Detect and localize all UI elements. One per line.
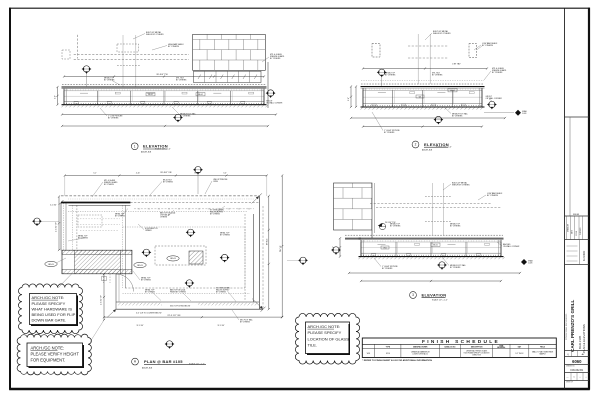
svg-text:A06-BR -BLB: A06-BR -BLB: [142, 367, 153, 370]
svg-text:FOR EQUIPMENT.: FOR EQUIPMENT.: [31, 358, 66, 363]
svg-text:A06-BR -BLB: A06-BR -BLB: [141, 151, 152, 154]
svg-text:BY OTHERS: BY OTHERS: [240, 322, 251, 324]
svg-text:ON WALL CORNER: ON WALL CORNER: [266, 102, 283, 105]
svg-text:ISSUES: ISSUES: [573, 214, 580, 216]
svg-text:1: 1: [134, 144, 136, 148]
svg-text:PLEASE VERIFY HEIGHT: PLEASE VERIFY HEIGHT: [31, 352, 80, 357]
svg-text:5'-1 3/4": 5'-1 3/4": [50, 205, 57, 207]
svg-text:CLUB: CLUB: [528, 262, 532, 264]
svg-text:3: 3: [412, 293, 414, 297]
svg-text:11'-1 3/4": 11'-1 3/4": [137, 325, 144, 327]
svg-text:BY OTHERS: BY OTHERS: [452, 116, 463, 118]
svg-text:6.25.08: 6.25.08: [576, 231, 578, 236]
svg-text:FINISH SCHEDULE: FINISH SCHEDULE: [422, 339, 500, 345]
svg-text:CHECKED: CHECKED: [580, 227, 582, 235]
svg-text:Q: Q: [567, 354, 569, 356]
svg-text:ARCH./GC NOTE:: ARCH./GC NOTE:: [32, 295, 65, 300]
svg-text:KICK TO FOOTING BELOW: KICK TO FOOTING BELOW: [170, 306, 191, 308]
svg-text:SHELF BY OTHERS: SHELF BY OTHERS: [452, 185, 470, 187]
svg-text:BY OTHERS: BY OTHERS: [141, 280, 152, 282]
svg-text:DOWN BAR GATE.: DOWN BAR GATE.: [32, 318, 67, 323]
svg-text:W01: W01: [383, 247, 386, 249]
svg-text:3'-6": 3'-6": [55, 95, 57, 99]
svg-text:BEING USED FOR FLIP: BEING USED FOR FLIP: [32, 312, 76, 317]
svg-text:BE-02: BE-02: [198, 94, 203, 96]
svg-text:SHELF BY OTHERS: SHELF BY OTHERS: [146, 34, 164, 36]
svg-text:BY OTHERS: BY OTHERS: [220, 235, 231, 237]
svg-text:BY OTHERS: BY OTHERS: [482, 45, 494, 47]
svg-text:BR-03: BR-03: [48, 264, 53, 266]
svg-text:BE-01: BE-01: [433, 245, 438, 247]
svg-text:CARL PRENZO'S GRILL: CARL PRENZO'S GRILL: [570, 300, 575, 352]
svg-text:4'-5 3/4" VIF: 4'-5 3/4" VIF: [56, 221, 58, 232]
svg-text:K216: K216: [386, 353, 390, 355]
svg-text:OWNER: OWNER: [145, 230, 152, 232]
svg-text:BR-03: BR-03: [137, 265, 142, 267]
svg-text:BY OTHERS: BY OTHERS: [487, 195, 499, 197]
svg-text:A06-BR -BLB: A06-BR -BLB: [422, 149, 433, 152]
svg-text:ON WALL CORNER: ON WALL CORNER: [503, 245, 520, 248]
svg-text:BE-01: BE-01: [450, 90, 455, 92]
svg-text:FIELD: FIELD: [540, 346, 546, 348]
svg-text:PLAN @ BAR #105: PLAN @ BAR #105: [144, 359, 183, 364]
svg-text:K-NORD: K-NORD: [582, 251, 586, 261]
svg-text:BY OTHERS: BY OTHERS: [450, 226, 461, 228]
svg-text:BY OTHERS: BY OTHERS: [382, 268, 393, 270]
svg-text:* REFER TO FINISH SHEET A1.05: * REFER TO FINISH SHEET A1.05 FOR ADDITI…: [362, 359, 432, 362]
svg-text:BY OTHERS: BY OTHERS: [384, 132, 395, 134]
svg-text:CTR TBV: CTR TBV: [452, 64, 461, 66]
svg-text:W2: W2: [419, 96, 422, 98]
svg-text:3'-6": 3'-6": [333, 246, 335, 250]
svg-text:SCALE: 1/2" = 1'-0": SCALE: 1/2" = 1'-0": [189, 363, 205, 366]
svg-text:CLUB: CLUB: [522, 113, 526, 115]
svg-text:PLEASE SPECIFY: PLEASE SPECIFY: [308, 330, 342, 335]
svg-text:SHELF BY OTHERS: SHELF BY OTHERS: [433, 33, 451, 35]
svg-text:OPEN: OPEN: [213, 181, 219, 183]
svg-text:2: 2: [415, 143, 417, 147]
svg-text:4'-9 3/4" VIF: 4'-9 3/4" VIF: [101, 294, 103, 305]
svg-text:26'-3/4" TW: 26'-3/4" TW: [156, 74, 168, 76]
svg-text:ARCH./GC NOTE:: ARCH./GC NOTE:: [308, 324, 341, 329]
svg-text:BY OTHERS: BY OTHERS: [492, 72, 503, 74]
svg-text:PLAN & ELEVATIONS: PLAN & ELEVATIONS: [582, 324, 586, 353]
svg-text:BY OTHERS: BY OTHERS: [176, 80, 187, 82]
svg-text:BY OTHERS: BY OTHERS: [115, 216, 126, 218]
svg-text:DIRECTION: DIRECTION: [472, 354, 481, 356]
svg-text:TILE.: TILE.: [308, 343, 318, 348]
svg-text:5'-0": 5'-0": [223, 173, 227, 175]
svg-text:BY OTHERS: BY OTHERS: [432, 75, 443, 77]
svg-text:SCALE: 1/2" = 1'-0": SCALE: 1/2" = 1'-0": [155, 148, 171, 151]
svg-text:ELEVATION: ELEVATION: [422, 292, 447, 297]
svg-text:6060: 6060: [572, 359, 582, 364]
svg-text:W01: W01: [367, 353, 371, 355]
svg-text:BY OTHERS: BY OTHERS: [210, 214, 221, 216]
svg-text:SCALE: 1/2" = 1'-0": SCALE: 1/2" = 1'-0": [432, 298, 448, 301]
svg-text:BR-03: BR-03: [170, 258, 175, 260]
svg-text:BR TILE: BR TILE: [267, 238, 269, 245]
svg-text:MANUFACTURER: MANUFACTURER: [413, 345, 428, 348]
svg-text:WHAT HARDWARE IS: WHAT HARDWARE IS: [32, 307, 73, 312]
svg-text:SCALE: 1/2" = 1'-0": SCALE: 1/2" = 1'-0": [436, 146, 452, 149]
svg-text:SHEET OF: SHEET OF: [566, 382, 573, 384]
svg-text:DESCRIPTION: DESCRIPTION: [471, 346, 483, 348]
svg-text:BE-01: BE-01: [148, 94, 153, 96]
svg-text:BY OTHERS: BY OTHERS: [168, 46, 180, 48]
svg-text:26'-3/4" VIF: 26'-3/4" VIF: [160, 172, 172, 174]
svg-text:1/4" THICK: 1/4" THICK: [515, 353, 524, 355]
svg-text:TRIM: TRIM: [499, 345, 504, 347]
svg-text:FINISH BY OTHERS: FINISH BY OTHERS: [170, 292, 187, 294]
svg-text:BY OTHERS: BY OTHERS: [216, 292, 227, 294]
svg-text:K06-062-B1: K06-062-B1: [570, 369, 583, 372]
svg-text:6'-0" CLR TO COUNTER BELOW: 6'-0" CLR TO COUNTER BELOW: [136, 313, 162, 315]
svg-text:LOCATION OF GLASS: LOCATION OF GLASS: [308, 336, 350, 341]
svg-text:3'-6": 3'-6": [348, 97, 350, 101]
svg-text:BY OTHERS: BY OTHERS: [385, 75, 396, 77]
svg-text:OTHERS: OTHERS: [160, 217, 168, 219]
svg-text:4'-11": 4'-11": [136, 173, 141, 175]
svg-text:CATALOG NO.: CATALOG NO.: [444, 345, 456, 348]
svg-text:5'-1": 5'-1": [93, 173, 97, 175]
svg-text:BY OTHERS: BY OTHERS: [108, 118, 119, 120]
svg-text:TBV VIF: TBV VIF: [280, 246, 282, 252]
svg-text:PLEASE SPECIFY: PLEASE SPECIFY: [32, 301, 66, 306]
svg-text:BY OTHERS: BY OTHERS: [163, 182, 174, 184]
svg-text:BY OTHERS: BY OTHERS: [78, 238, 89, 240]
svg-text:ON WALL CORNER: ON WALL CORNER: [486, 97, 503, 100]
svg-text:BY OTHERS: BY OTHERS: [104, 184, 115, 186]
svg-text:BY OTHERS: BY OTHERS: [145, 292, 156, 294]
svg-text:11'-1 3/4": 11'-1 3/4": [218, 325, 225, 327]
svg-text:BY OTHERS: BY OTHERS: [270, 58, 281, 60]
svg-text:22'-3 1/2" VIF: 22'-3 1/2" VIF: [167, 315, 181, 317]
svg-text:BY OTHERS: BY OTHERS: [390, 226, 401, 228]
svg-text:ARCH./GC NOTE:: ARCH./GC NOTE:: [31, 346, 65, 351]
svg-text:BY OTHERS: BY OTHERS: [450, 267, 461, 269]
